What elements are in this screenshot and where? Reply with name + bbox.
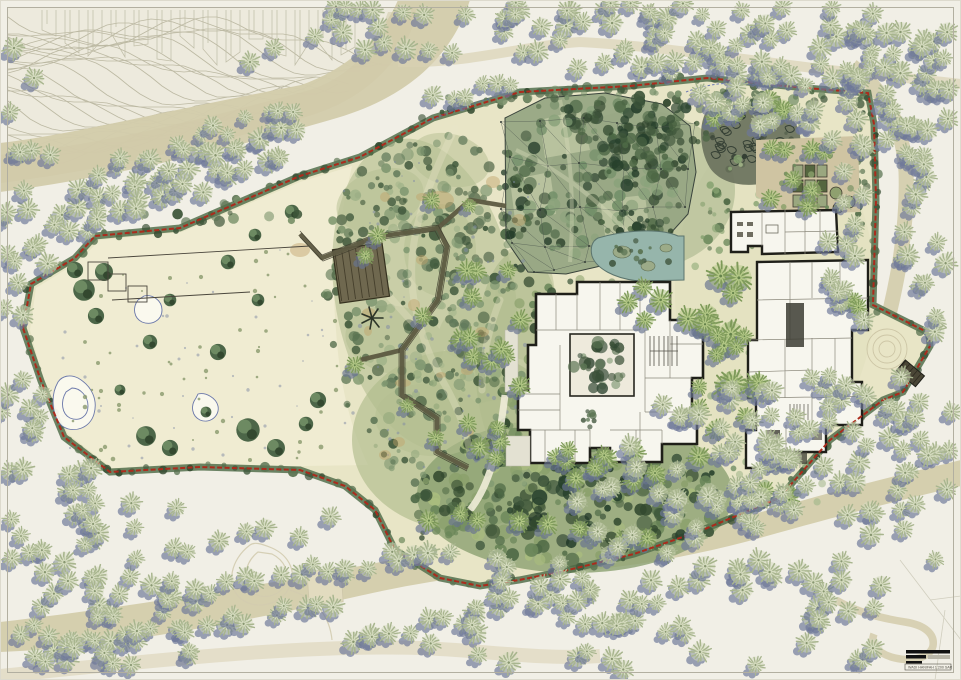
svg-text:WADI HANIFAH 1:200 SAR: WADI HANIFAH 1:200 SAR bbox=[908, 666, 953, 670]
